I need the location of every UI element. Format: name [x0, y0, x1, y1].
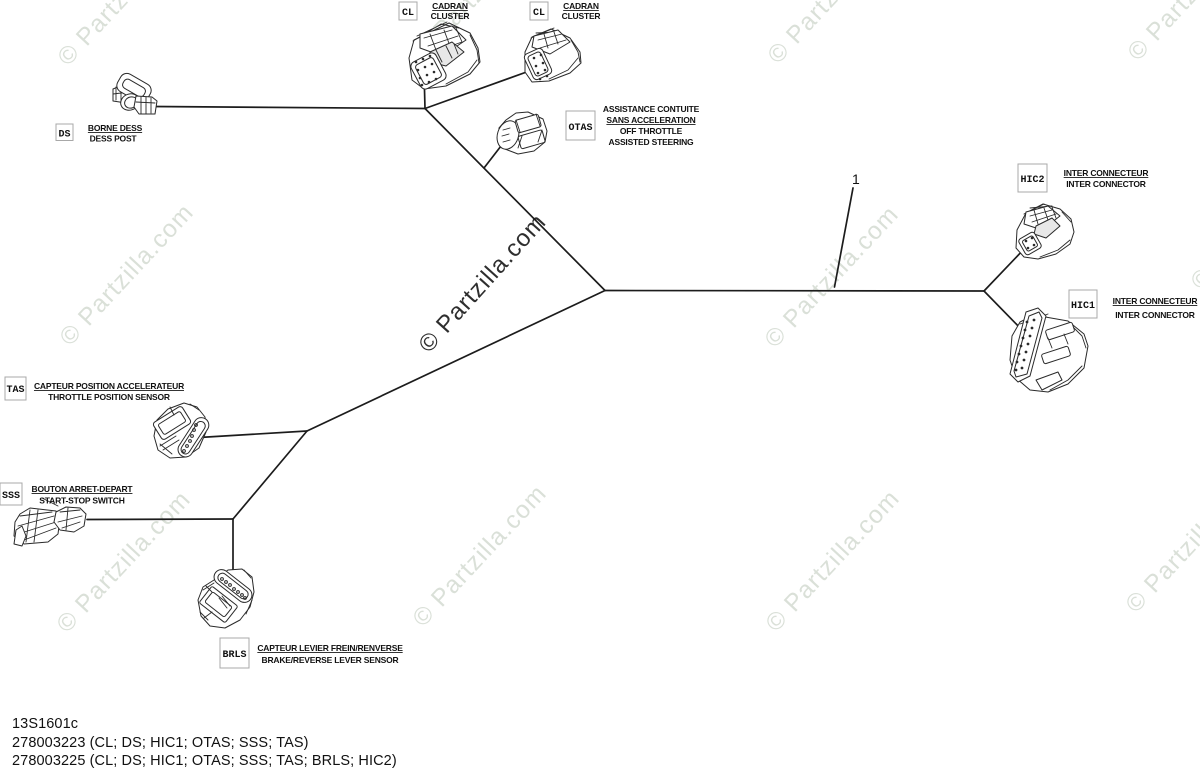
svg-text:DS: DS: [58, 130, 70, 141]
svg-text:CLUSTER: CLUSTER: [562, 11, 601, 21]
svg-text:278003223 (CL; DS; HIC1; OTAS;: 278003223 (CL; DS; HIC1; OTAS; SSS; TAS): [12, 735, 309, 751]
svg-text:DESS POST: DESS POST: [90, 134, 138, 144]
svg-text:INTER CONNECTEUR: INTER CONNECTEUR: [1064, 168, 1149, 178]
svg-text:CAPTEUR LEVIER FREIN/RENVERSE: CAPTEUR LEVIER FREIN/RENVERSE: [257, 643, 403, 653]
svg-text:CL: CL: [402, 8, 414, 19]
svg-text:BORNE DESS: BORNE DESS: [88, 123, 143, 133]
svg-text:CL: CL: [533, 8, 545, 19]
svg-text:CADRAN: CADRAN: [563, 1, 599, 11]
svg-text:START-STOP SWITCH: START-STOP SWITCH: [39, 496, 124, 506]
svg-text:HIC2: HIC2: [1020, 175, 1044, 186]
svg-text:SANS ACCELERATION: SANS ACCELERATION: [606, 115, 695, 125]
svg-text:INTER CONNECTOR: INTER CONNECTOR: [1066, 179, 1146, 189]
svg-text:INTER CONNECTEUR: INTER CONNECTEUR: [1113, 296, 1198, 306]
svg-text:BRLS: BRLS: [222, 650, 246, 661]
svg-text:SSS: SSS: [2, 491, 20, 502]
svg-text:CADRAN: CADRAN: [432, 1, 468, 11]
svg-text:INTER CONNECTOR: INTER CONNECTOR: [1115, 310, 1195, 320]
svg-text:BOUTON ARRET-DEPART: BOUTON ARRET-DEPART: [32, 484, 134, 494]
svg-text:ASSISTANCE CONTUITE: ASSISTANCE CONTUITE: [603, 104, 700, 114]
svg-text:TAS: TAS: [6, 385, 24, 396]
svg-text:CLUSTER: CLUSTER: [431, 11, 470, 21]
svg-text:BRAKE/REVERSE LEVER SENSOR: BRAKE/REVERSE LEVER SENSOR: [262, 655, 399, 665]
svg-text:OFF THROTTLE: OFF THROTTLE: [620, 126, 683, 136]
svg-text:ASSISTED STEERING: ASSISTED STEERING: [609, 137, 695, 147]
svg-text:HIC1: HIC1: [1071, 301, 1095, 312]
svg-text:278003225 (CL; DS; HIC1; OTAS;: 278003225 (CL; DS; HIC1; OTAS; SSS; TAS;…: [12, 753, 397, 769]
svg-text:13S1601c: 13S1601c: [12, 716, 78, 732]
svg-text:THROTTLE POSITION SENSOR: THROTTLE POSITION SENSOR: [48, 392, 170, 402]
svg-text:CAPTEUR POSITION ACCELERATEUR: CAPTEUR POSITION ACCELERATEUR: [34, 381, 184, 391]
svg-text:1: 1: [852, 171, 860, 187]
svg-text:OTAS: OTAS: [568, 123, 592, 134]
